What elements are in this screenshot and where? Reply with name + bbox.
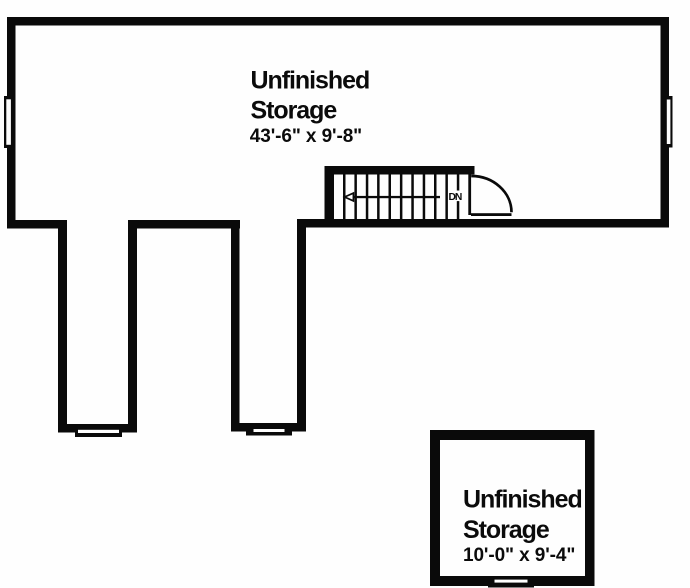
svg-text:Storage: Storage — [251, 97, 338, 125]
svg-text:43'-6" x 9'-8": 43'-6" x 9'-8" — [250, 126, 362, 147]
svg-text:10'-0" x 9'-4": 10'-0" x 9'-4" — [463, 545, 575, 566]
svg-text:Unfinished: Unfinished — [463, 486, 582, 514]
svg-text:Unfinished: Unfinished — [251, 67, 370, 95]
svg-text:Storage: Storage — [463, 516, 550, 544]
svg-text:DN: DN — [449, 192, 462, 203]
